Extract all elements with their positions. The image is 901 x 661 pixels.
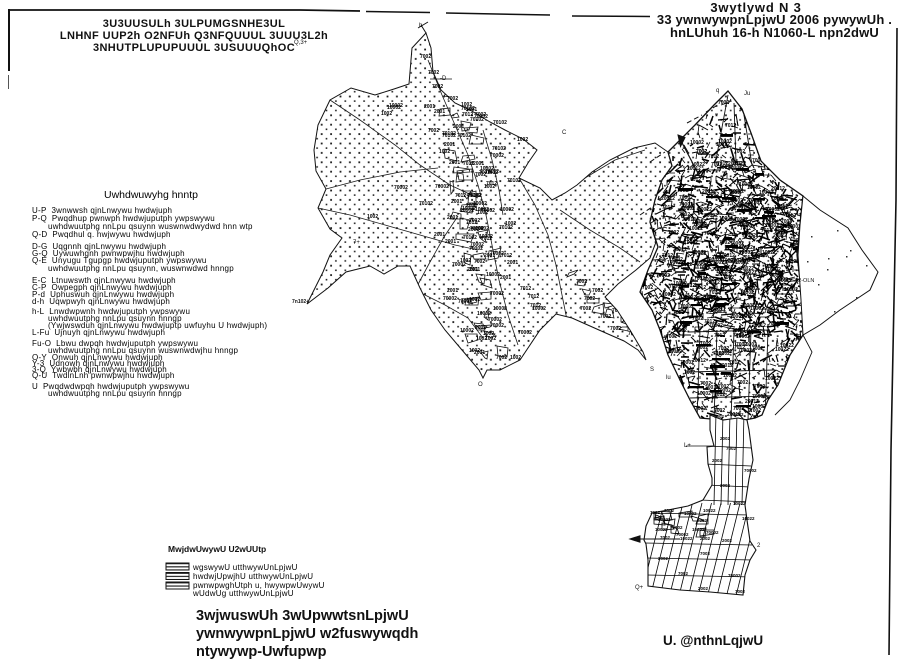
svg-text:10022: 10022 (785, 259, 799, 265)
svg-text:7012: 7012 (704, 231, 715, 237)
svg-text:10002: 10002 (736, 334, 750, 340)
svg-text:70002: 70002 (443, 296, 457, 302)
svg-text:7002: 7002 (600, 314, 611, 320)
svg-text:70102: 70102 (463, 235, 477, 241)
svg-text:7002: 7002 (496, 355, 507, 361)
svg-text:7002: 7002 (750, 408, 761, 414)
svg-text:7002: 7002 (718, 100, 729, 106)
svg-text:7002: 7002 (692, 316, 703, 322)
svg-text:7002: 7002 (734, 149, 745, 155)
svg-text:10022: 10022 (733, 501, 746, 506)
svg-text:20012: 20012 (771, 186, 785, 192)
svg-text:70002: 70002 (766, 207, 780, 213)
svg-text:7002: 7002 (729, 190, 740, 196)
svg-text:10022: 10022 (692, 527, 705, 532)
svg-text:2002: 2002 (698, 586, 709, 591)
svg-text:70002: 70002 (764, 309, 778, 315)
svg-text:7002: 7002 (719, 240, 730, 246)
svg-text:7002: 7002 (735, 589, 746, 594)
svg-text:7002: 7002 (447, 96, 458, 102)
svg-text:70002: 70002 (712, 267, 726, 273)
svg-text:7002: 7002 (664, 508, 675, 513)
svg-text:2001: 2001 (468, 227, 479, 233)
svg-text:10002: 10002 (493, 306, 507, 312)
svg-text:7002: 7002 (741, 206, 752, 212)
svg-text:7012: 7012 (708, 154, 719, 160)
svg-text:7002: 7002 (752, 346, 763, 352)
svg-text:7002: 7002 (736, 342, 747, 348)
svg-text:2001: 2001 (449, 160, 460, 166)
svg-text:7002: 7002 (605, 296, 616, 302)
svg-text:10002: 10002 (662, 292, 676, 298)
svg-text:O: O (478, 382, 483, 388)
svg-text:70002: 70002 (679, 195, 693, 201)
svg-text:7012: 7012 (528, 294, 539, 300)
svg-text:7012: 7012 (699, 265, 710, 271)
svg-text:q: q (716, 88, 719, 94)
svg-text:20012: 20012 (752, 323, 766, 329)
svg-text:7012: 7012 (466, 220, 477, 226)
svg-text:7002: 7002 (576, 279, 587, 285)
svg-text:7002: 7002 (610, 326, 621, 332)
svg-text:10002: 10002 (759, 190, 773, 196)
svg-text:70002: 70002 (679, 202, 693, 208)
svg-text:2001: 2001 (447, 215, 458, 221)
svg-text:7002: 7002 (677, 188, 688, 194)
svg-text:15C02-OLN: 15C02-OLN (785, 278, 814, 284)
svg-text:2001: 2001 (507, 260, 518, 266)
svg-text:70002: 70002 (744, 468, 757, 473)
svg-text:1002: 1002 (460, 258, 471, 264)
svg-text:2001: 2001 (447, 288, 458, 294)
svg-text:2: 2 (757, 543, 761, 549)
svg-text:10002: 10002 (767, 267, 781, 273)
svg-text:20012: 20012 (719, 363, 733, 369)
svg-text:7002: 7002 (737, 380, 748, 386)
svg-text:10022: 10022 (742, 516, 755, 521)
svg-text:7002: 7002 (708, 192, 719, 198)
svg-text:Q+: Q+ (635, 585, 644, 591)
svg-text:70002: 70002 (481, 208, 495, 214)
svg-text:7002: 7002 (678, 571, 689, 576)
svg-text:7012: 7012 (530, 303, 541, 309)
svg-text:2002: 2002 (720, 483, 731, 488)
svg-text:1002: 1002 (461, 102, 472, 108)
svg-text:10022: 10022 (775, 347, 789, 353)
svg-text:1002: 1002 (367, 214, 378, 220)
svg-text:2001: 2001 (475, 325, 486, 331)
svg-text:20012: 20012 (752, 253, 766, 259)
svg-text:70002: 70002 (709, 323, 723, 329)
svg-text:10022: 10022 (740, 266, 754, 272)
svg-text:7012: 7012 (761, 228, 772, 234)
svg-text:10002: 10002 (684, 237, 698, 243)
svg-text:2001: 2001 (467, 267, 478, 273)
svg-text:10002: 10002 (734, 217, 748, 223)
svg-text:70002: 70002 (748, 198, 762, 204)
svg-text:7012: 7012 (787, 355, 798, 361)
svg-text:7002: 7002 (428, 70, 439, 76)
svg-text:70002: 70002 (435, 184, 449, 190)
svg-text:7002: 7002 (432, 84, 443, 90)
svg-text:70002: 70002 (490, 323, 504, 329)
svg-text:7002: 7002 (700, 381, 711, 387)
svg-text:2002: 2002 (658, 556, 669, 561)
svg-text:7012: 7012 (662, 205, 673, 211)
svg-text:10002: 10002 (460, 208, 474, 214)
svg-text:70102: 70102 (468, 193, 482, 199)
svg-text:7012: 7012 (714, 392, 725, 398)
svg-text:70002: 70002 (731, 412, 744, 417)
svg-text:7002: 7002 (592, 288, 603, 294)
svg-text:20012: 20012 (661, 196, 675, 202)
svg-text:70002: 70002 (490, 291, 504, 297)
svg-text:7012: 7012 (695, 285, 706, 291)
svg-text:10022: 10022 (739, 245, 753, 251)
svg-text:2002: 2002 (722, 538, 733, 543)
svg-text:7002: 7002 (580, 306, 591, 312)
svg-text:10002: 10002 (500, 207, 514, 213)
svg-text:2001: 2001 (445, 239, 456, 245)
svg-text:10022: 10022 (723, 373, 737, 379)
svg-text:20012: 20012 (673, 247, 687, 253)
svg-text:70002: 70002 (768, 321, 782, 327)
svg-text:7012: 7012 (714, 333, 725, 339)
svg-text:70002: 70002 (488, 317, 502, 323)
svg-text:C: C (562, 130, 567, 136)
svg-text:7002: 7002 (703, 277, 714, 283)
svg-text:10022: 10022 (693, 222, 707, 228)
svg-text:70002: 70002 (490, 153, 504, 159)
svg-text:70102: 70102 (493, 120, 507, 126)
svg-text:1002: 1002 (485, 336, 496, 342)
svg-text:2001: 2001 (444, 142, 455, 148)
svg-text:20012: 20012 (692, 358, 706, 364)
svg-text:7002: 7002 (650, 510, 661, 515)
svg-text:20012: 20012 (745, 399, 759, 405)
svg-text:1002: 1002 (381, 111, 392, 117)
svg-text:7002: 7002 (726, 446, 737, 451)
svg-text:10002: 10002 (750, 306, 764, 312)
svg-text:7002: 7002 (584, 296, 595, 302)
svg-text:10002: 10002 (739, 182, 753, 188)
svg-text:10022: 10022 (655, 527, 668, 532)
svg-text:2002: 2002 (700, 536, 711, 541)
svg-text:20012: 20012 (739, 314, 753, 320)
svg-text:70002: 70002 (470, 242, 484, 248)
svg-text:20012: 20012 (728, 161, 742, 167)
svg-text:70102: 70102 (507, 178, 521, 184)
svg-text:10022: 10022 (658, 517, 671, 522)
svg-text:10002: 10002 (690, 140, 704, 146)
svg-text:10002: 10002 (387, 105, 401, 111)
svg-text:70002: 70002 (742, 233, 756, 239)
svg-text:7002: 7002 (718, 384, 729, 390)
svg-text:1002: 1002 (439, 149, 450, 155)
svg-text:1002: 1002 (469, 348, 480, 354)
svg-text:2001: 2001 (484, 253, 495, 259)
svg-text:10002: 10002 (740, 290, 754, 296)
svg-text:10002: 10002 (784, 287, 798, 293)
svg-text:7012: 7012 (737, 223, 748, 229)
svg-text:7012: 7012 (776, 196, 787, 202)
svg-text:2001: 2001 (451, 199, 462, 205)
svg-text:7012: 7012 (455, 193, 466, 199)
svg-text:10002: 10002 (486, 272, 500, 278)
svg-text:70102: 70102 (442, 133, 456, 139)
svg-text:7012: 7012 (763, 218, 774, 224)
svg-text:7002: 7002 (642, 285, 653, 291)
svg-text:20012: 20012 (712, 307, 726, 313)
svg-text:70002: 70002 (669, 257, 683, 263)
svg-text:Q,3+: Q,3+ (294, 40, 308, 46)
svg-text:7002: 7002 (781, 219, 792, 225)
svg-text:1002: 1002 (469, 297, 480, 303)
svg-text:7002: 7002 (622, 318, 633, 324)
svg-text:7002: 7002 (695, 406, 706, 412)
svg-text:2001: 2001 (434, 109, 445, 115)
svg-text:10022: 10022 (680, 536, 693, 541)
svg-text:7002: 7002 (700, 551, 711, 556)
svg-text:10002: 10002 (668, 349, 682, 355)
svg-text:2001: 2001 (434, 232, 445, 238)
svg-text:2001: 2001 (500, 275, 511, 281)
svg-text:7n102+: 7n102+ (292, 299, 309, 305)
svg-text:70002: 70002 (706, 530, 719, 535)
svg-text:7002: 7002 (711, 162, 722, 168)
svg-text:7012: 7012 (690, 177, 701, 183)
svg-text:10002: 10002 (729, 198, 743, 204)
svg-text:7002: 7002 (428, 128, 439, 134)
svg-text:70002: 70002 (692, 250, 706, 256)
svg-text:70002: 70002 (728, 573, 741, 578)
svg-text:10002: 10002 (718, 139, 732, 145)
svg-text:70002: 70002 (656, 273, 670, 279)
svg-text:7002: 7002 (420, 54, 431, 60)
svg-text:7002: 7002 (666, 334, 677, 340)
svg-text:Ju: Ju (744, 91, 750, 97)
svg-text:70102: 70102 (419, 201, 433, 207)
svg-text:70102: 70102 (492, 146, 506, 152)
svg-text:7002: 7002 (754, 384, 765, 390)
svg-text:7002: 7002 (475, 172, 486, 178)
svg-text:7012: 7012 (520, 286, 531, 292)
svg-text:7002: 7002 (696, 149, 707, 155)
svg-text:2002: 2002 (720, 436, 731, 441)
svg-text:7002: 7002 (697, 518, 708, 523)
svg-text:7002: 7002 (714, 414, 725, 419)
svg-text:7002: 7002 (718, 346, 729, 352)
svg-text:7002: 7002 (474, 259, 485, 265)
svg-text:70002: 70002 (518, 330, 532, 336)
svg-text:70002: 70002 (704, 213, 718, 219)
svg-text:2002: 2002 (712, 458, 723, 463)
svg-text:1002: 1002 (510, 355, 521, 361)
svg-text:7012: 7012 (486, 181, 497, 187)
svg-text:10002: 10002 (697, 391, 711, 397)
svg-text:70002: 70002 (394, 185, 408, 191)
svg-text:20012: 20012 (731, 258, 745, 264)
svg-text:70102: 70102 (470, 117, 484, 123)
svg-text:70102: 70102 (457, 133, 471, 139)
svg-text:70002: 70002 (702, 295, 716, 301)
svg-text:1002: 1002 (505, 221, 516, 227)
svg-text:10002: 10002 (479, 234, 493, 240)
svg-text:2001: 2001 (473, 161, 484, 167)
svg-text:7012: 7012 (725, 123, 736, 129)
svg-text:20012: 20012 (773, 233, 787, 239)
svg-text:7002: 7002 (685, 295, 696, 301)
svg-text:7012: 7012 (487, 170, 498, 176)
svg-text:10022: 10022 (703, 508, 716, 513)
svg-text:7012: 7012 (463, 161, 474, 167)
svg-text:2001: 2001 (453, 124, 464, 130)
svg-text:10002: 10002 (719, 216, 733, 222)
svg-text:7002: 7002 (668, 230, 679, 236)
svg-text:S: S (650, 367, 654, 373)
svg-text:10002: 10002 (460, 328, 474, 334)
svg-text:1002: 1002 (517, 137, 528, 143)
svg-text:lu: lu (666, 375, 671, 381)
svg-text:7002: 7002 (766, 404, 777, 410)
svg-text:10002: 10002 (673, 281, 687, 287)
svg-text:7002: 7002 (700, 341, 711, 347)
svg-text:10002: 10002 (473, 201, 487, 207)
svg-text:7002: 7002 (684, 370, 695, 376)
svg-text:7012: 7012 (673, 310, 684, 316)
svg-text:7+: 7+ (353, 240, 360, 246)
svg-text:10022: 10022 (765, 376, 779, 382)
svg-text:10022: 10022 (684, 511, 697, 516)
svg-text:70002: 70002 (670, 525, 683, 530)
